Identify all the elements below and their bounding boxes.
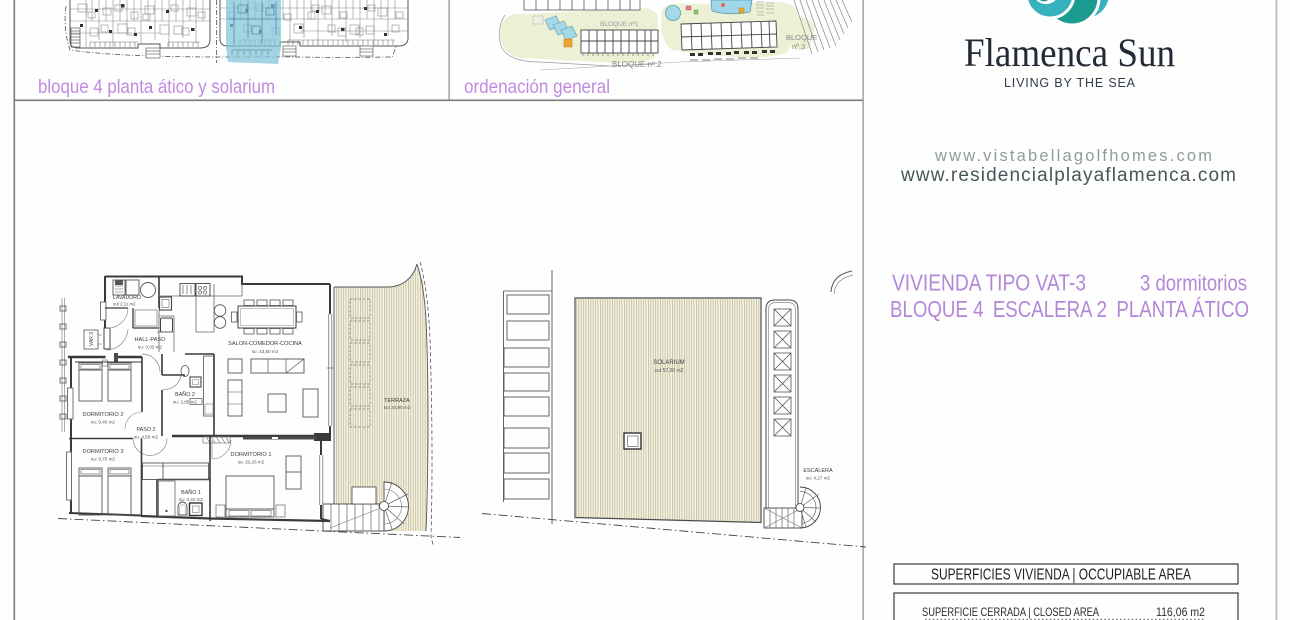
svg-text:ordenación general: ordenación general — [464, 76, 610, 98]
svg-text:su: 9,40 m2: su: 9,40 m2 — [91, 420, 115, 425]
svg-text:DORMITORIO 2: DORMITORIO 2 — [83, 412, 124, 418]
svg-text:LIVING BY THE SEA: LIVING BY THE SEA — [1004, 76, 1136, 90]
svg-text:su: 3,85 m2: su: 3,85 m2 — [173, 400, 197, 405]
svg-text:SUPERFICIES VIVIENDA | OCCUPIA: SUPERFICIES VIVIENDA | OCCUPIABLE AREA — [931, 567, 1192, 584]
svg-text:LAVADORO: LAVADORO — [113, 295, 141, 301]
svg-text:www.residencialplayaflamenca.c: www.residencialplayaflamenca.com — [900, 165, 1236, 186]
svg-text:BAÑO 2: BAÑO 2 — [175, 391, 195, 398]
svg-text:VIVIENDA TIPO VAT-3: VIVIENDA TIPO VAT-3 — [892, 270, 1086, 296]
svg-text:su: 4,50 m2: su: 4,50 m2 — [134, 435, 158, 440]
svg-text:www.vistabellagolfhomes.com: www.vistabellagolfhomes.com — [934, 147, 1212, 165]
svg-text:su: 3,42 m2: su: 3,42 m2 — [179, 497, 203, 502]
svg-text:116,06 m2: 116,06 m2 — [1156, 605, 1205, 619]
svg-text:BLOQUE 4 ESCALERA 2 PLANTA ÁTI: BLOQUE 4 ESCALERA 2 PLANTA ÁTICO — [890, 296, 1249, 322]
svg-text:sut 57,00 m2: sut 57,00 m2 — [655, 368, 684, 374]
svg-text:bloque 4 planta ático y solari: bloque 4 planta ático y solarium — [38, 76, 275, 98]
svg-text:3 dormitorios: 3 dormitorios — [1140, 271, 1247, 296]
svg-text:su: 4,27 m2: su: 4,27 m2 — [806, 476, 830, 481]
svg-text:BLOQUE: BLOQUE — [786, 33, 817, 42]
svg-text:BLOQUE nº.2: BLOQUE nº.2 — [612, 60, 662, 69]
svg-text:sut 2,11 m2: sut 2,11 m2 — [113, 302, 136, 307]
svg-text:HALL-PASO: HALL-PASO — [135, 337, 167, 343]
svg-text:BLOQUE nº1: BLOQUE nº1 — [600, 21, 639, 28]
svg-text:TERRAZA: TERRAZA — [384, 398, 410, 404]
svg-text:PASO 2: PASO 2 — [136, 427, 155, 433]
svg-text:SALON-COMEDOR-COCINA: SALON-COMEDOR-COCINA — [228, 341, 302, 347]
svg-text:nº.3: nº.3 — [792, 42, 805, 51]
svg-text:SUPERFICIE CERRADA | CLOSED AR: SUPERFICIE CERRADA | CLOSED AREA — [922, 605, 1099, 619]
svg-text:su: 9,75 m2: su: 9,75 m2 — [91, 457, 115, 462]
svg-text:su: 43,60 m2: su: 43,60 m2 — [252, 349, 279, 354]
svg-text:DORMITORIO 3: DORMITORIO 3 — [83, 449, 124, 455]
svg-text:VAR 3: VAR 3 — [89, 332, 95, 346]
svg-text:ESCALERA: ESCALERA — [803, 468, 833, 474]
svg-text:su: 20,26 m2: su: 20,26 m2 — [238, 460, 265, 465]
svg-text:DORMITORIO 1: DORMITORIO 1 — [231, 452, 272, 458]
svg-text:Flamenca Sun: Flamenca Sun — [964, 30, 1175, 75]
svg-text:sut 34,90 m2: sut 34,90 m2 — [384, 405, 411, 410]
svg-text:BAÑO 1: BAÑO 1 — [181, 489, 201, 496]
svg-text:SOLARIUM: SOLARIUM — [653, 360, 684, 366]
